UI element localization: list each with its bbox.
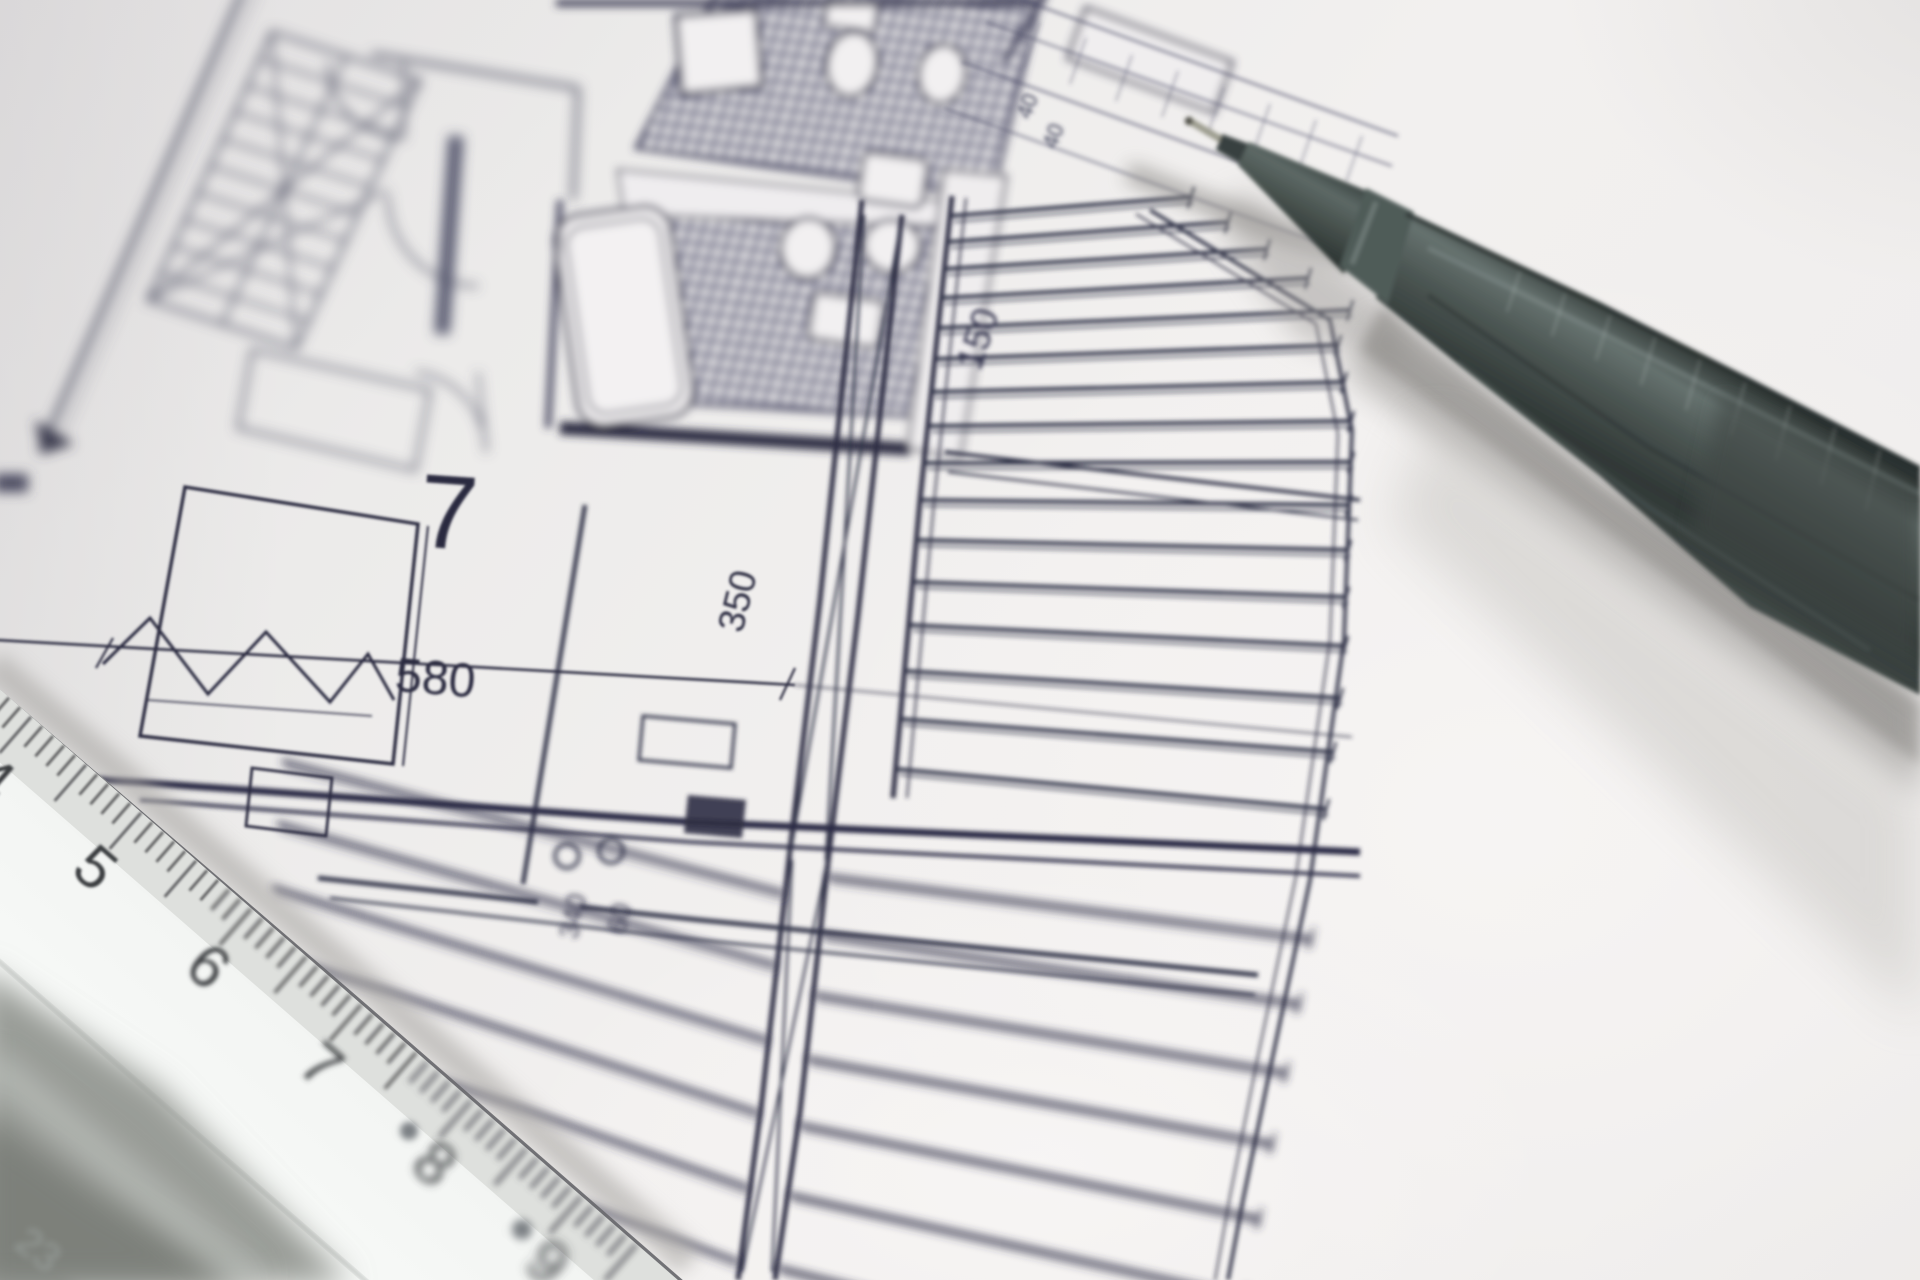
svg-text:580: 580 <box>393 649 477 709</box>
